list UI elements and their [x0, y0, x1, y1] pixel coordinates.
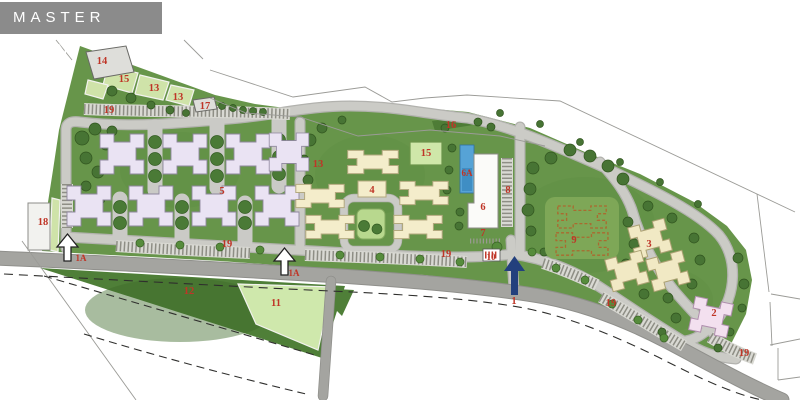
plot-label-1a: 1A [76, 253, 88, 263]
page-title: MASTER PLAN [0, 2, 162, 34]
plot-label-17: 17 [200, 101, 211, 112]
plot-label-18: 18 [38, 217, 49, 228]
plot-label-1a: 1A [289, 268, 301, 278]
plot-label-6: 6 [480, 202, 485, 213]
plot-label-4: 4 [369, 185, 375, 196]
plot-label-19: 19 [739, 348, 750, 359]
plot-label-8: 8 [505, 185, 510, 196]
amenity-court [357, 209, 385, 239]
plot-label-16: 16 [446, 120, 457, 131]
plot-label-13: 13 [313, 159, 324, 170]
plot-label-2: 2 [711, 308, 716, 319]
plot-label-15: 15 [119, 74, 130, 85]
plot-label-10: 10 [487, 252, 497, 262]
future-plot-9 [545, 197, 619, 259]
plot-label-19: 19 [606, 298, 617, 309]
plot-label-14: 14 [97, 56, 108, 67]
plot-label-11: 11 [271, 298, 281, 309]
plot-label-13: 13 [173, 92, 184, 103]
plot-label-12: 12 [184, 286, 195, 297]
plot-label-7: 7 [480, 228, 485, 239]
plot-label-13: 13 [149, 83, 160, 94]
site-plan-svg: 14 15 13 13 17 19 5 18 1A 12 19 1A 11 13… [0, 0, 800, 400]
plot-label-15: 15 [421, 148, 432, 159]
master-plan-canvas: 14 15 13 13 17 19 5 18 1A 12 19 1A 11 13… [0, 0, 800, 400]
plot-label-6a: 6A [462, 168, 474, 178]
plot-label-1: 1 [511, 296, 516, 307]
plot-label-3: 3 [646, 239, 651, 250]
plot-label-5: 5 [219, 186, 224, 197]
plot-label-19: 19 [104, 105, 115, 116]
plot-label-9: 9 [571, 235, 576, 246]
plot-label-19: 19 [441, 249, 452, 260]
plot-label-19: 19 [222, 239, 233, 250]
